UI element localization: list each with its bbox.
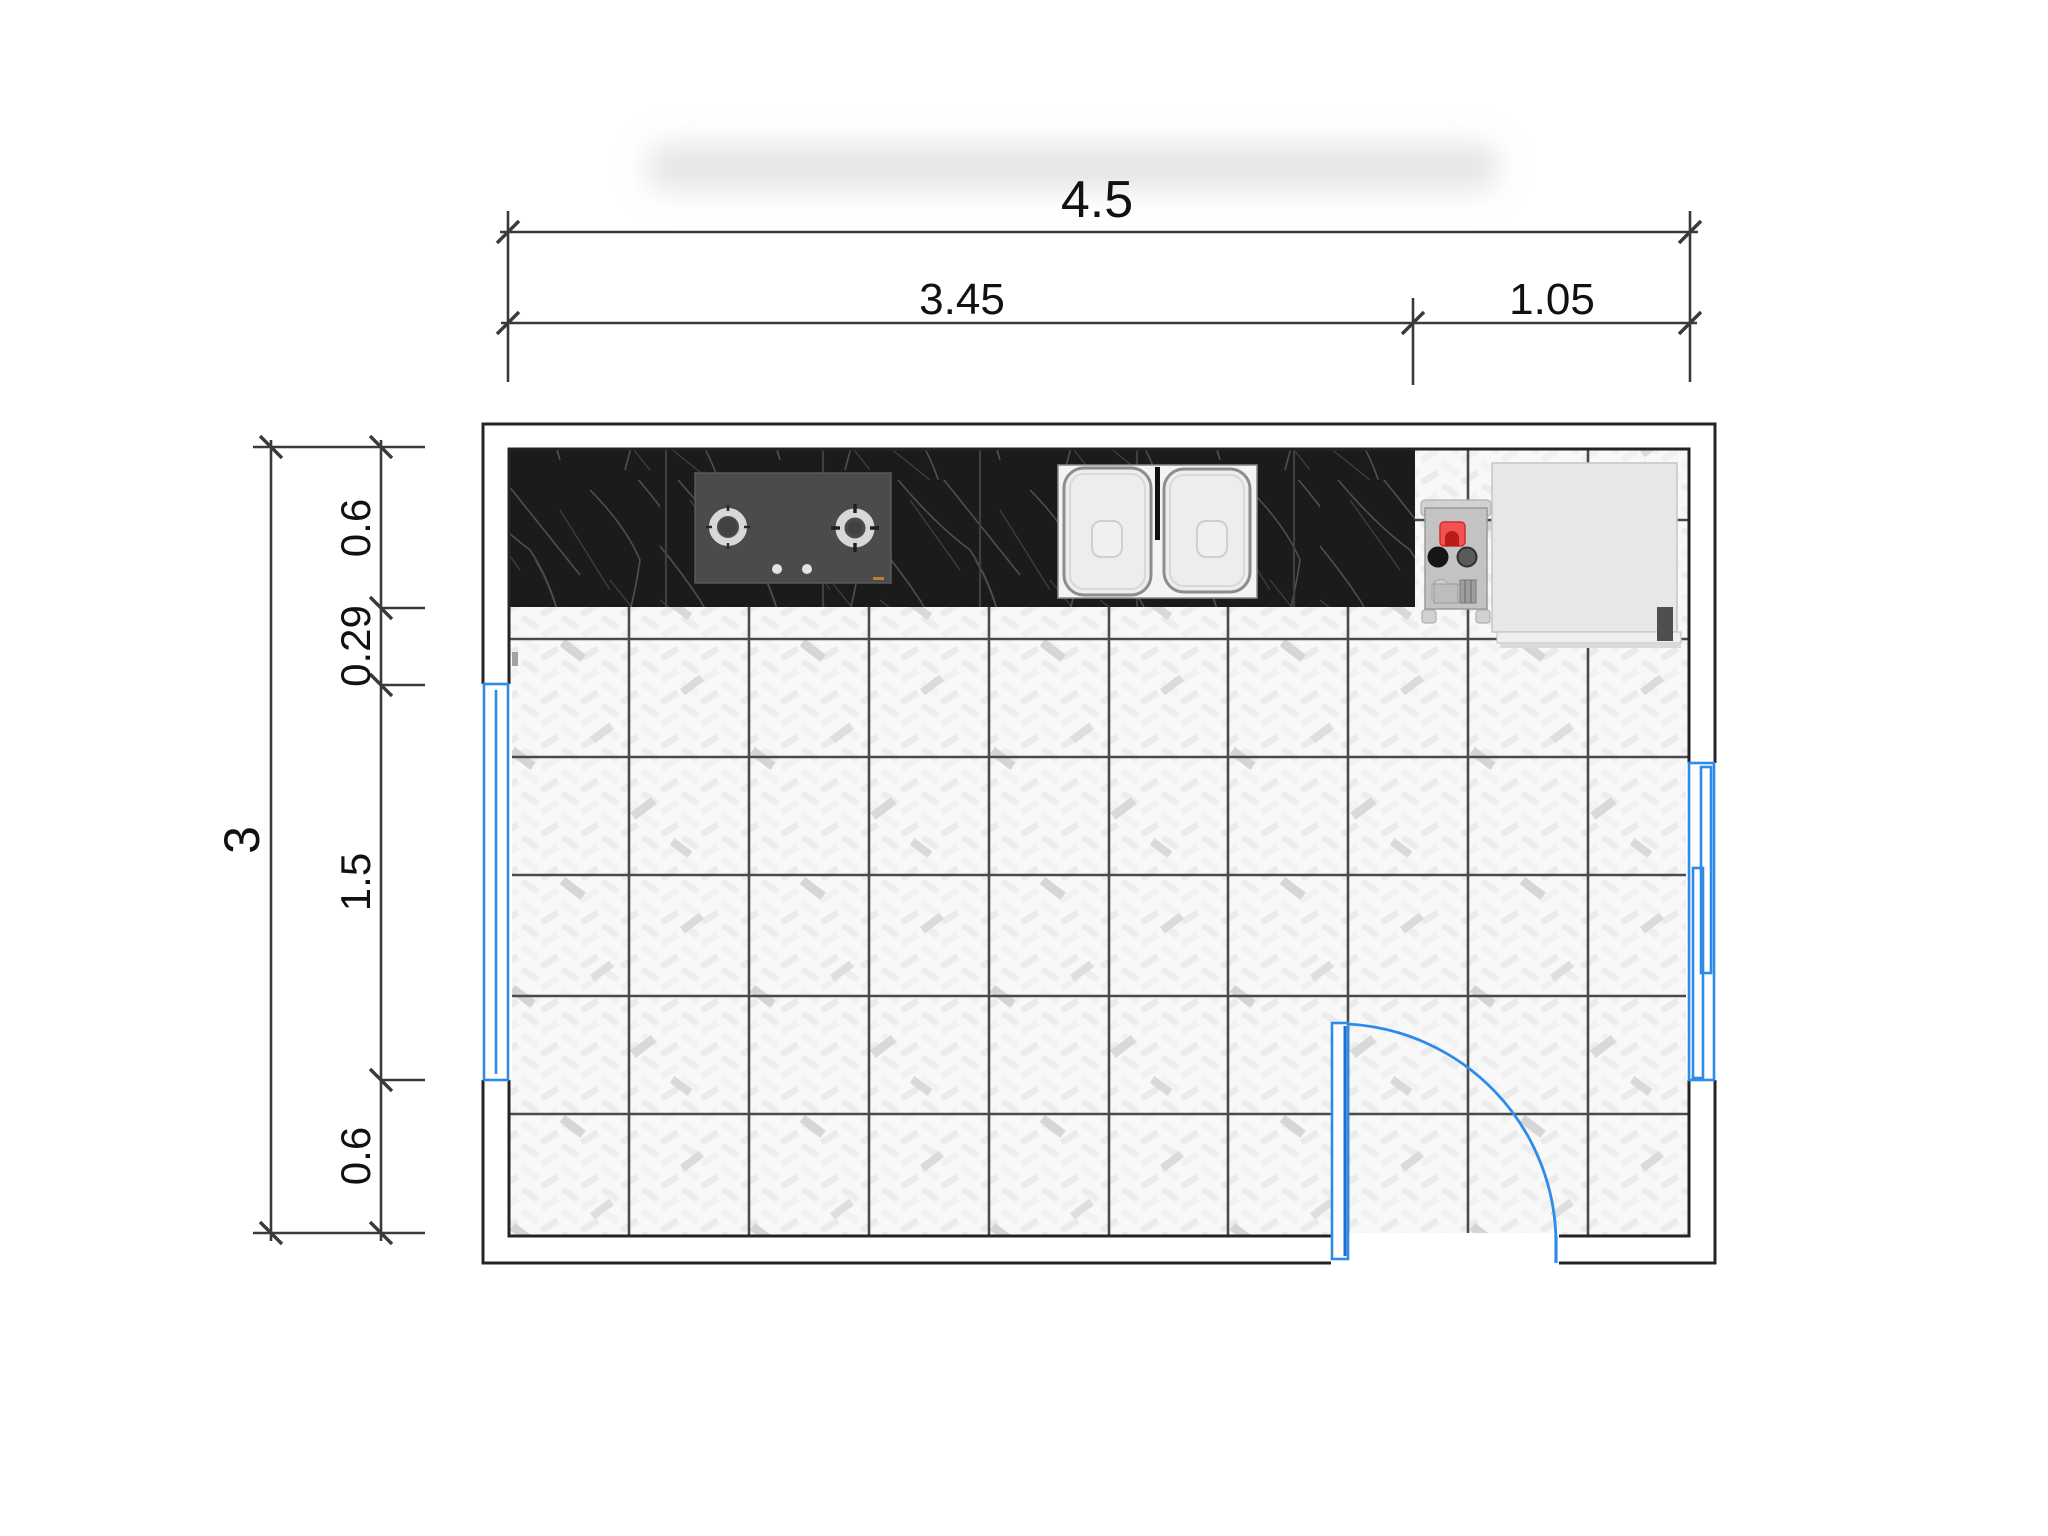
svg-text:0.6: 0.6 [332,499,379,557]
svg-text:1.5: 1.5 [332,853,379,911]
svg-text:0.29: 0.29 [332,605,379,687]
svg-text:0.6: 0.6 [332,1127,379,1185]
svg-text:4.5: 4.5 [1061,171,1133,229]
svg-text:3: 3 [214,826,270,854]
svg-text:3.45: 3.45 [919,275,1005,324]
svg-text:1.05: 1.05 [1509,275,1595,324]
